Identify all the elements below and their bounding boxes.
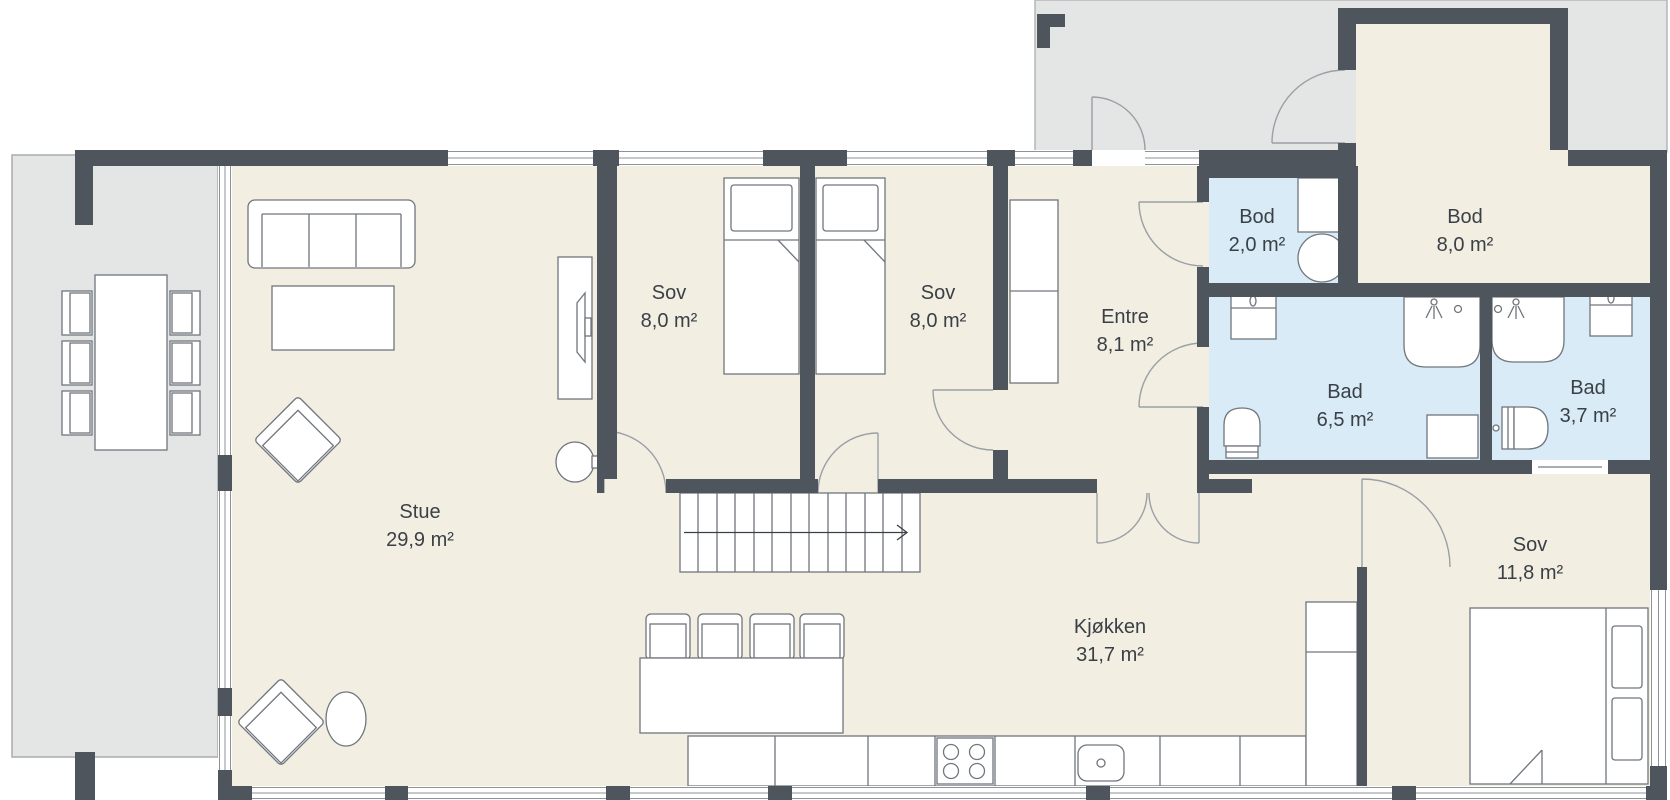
side-stool: [556, 442, 594, 482]
room-label-sov3: Sov: [1513, 534, 1547, 556]
room-area-kjokken: 31,7 m²: [1076, 644, 1144, 666]
bath-cabinet: [1427, 415, 1478, 458]
pillow: [1612, 626, 1642, 688]
room-area-bad37: 3,7 m²: [1560, 405, 1617, 427]
room-label-stue: Stue: [399, 501, 440, 523]
bar-stool: [646, 614, 690, 660]
coffee-table: [272, 286, 394, 350]
room-label-bod8: Bod: [1447, 206, 1483, 228]
room-label-bad65: Bad: [1327, 381, 1363, 403]
tall-cabinet: [1306, 602, 1357, 786]
pillow: [731, 185, 792, 231]
double-bed: [1470, 608, 1648, 784]
pillow: [1612, 698, 1642, 760]
room-area-bad65: 6,5 m²: [1317, 409, 1374, 431]
washing-machine-icon: [1590, 292, 1632, 336]
shower: [1492, 297, 1564, 362]
bar-stool: [750, 614, 794, 660]
sliding-door: [1532, 460, 1608, 474]
terrace: [12, 155, 218, 757]
room-bod8-tower-floor: [1356, 8, 1550, 166]
window: [232, 786, 1646, 800]
chair: [62, 291, 92, 335]
room-label-kjokken: Kjøkken: [1074, 616, 1146, 638]
kitchen-counter: [688, 736, 1306, 786]
chair: [170, 291, 200, 335]
chair: [170, 341, 200, 385]
shower: [1404, 297, 1480, 367]
chair: [170, 391, 200, 435]
floor-plan-page: Stue 29,9 m² Sov 8,0 m² Sov 8,0 m² Entre…: [0, 0, 1670, 800]
chair: [62, 391, 92, 435]
room-area-stue: 29,9 m²: [386, 529, 454, 551]
pillow: [823, 185, 878, 231]
single-bed: [724, 178, 799, 374]
room-label-bod2: Bod: [1239, 206, 1275, 228]
room-label-sov1: Sov: [652, 282, 686, 304]
kitchen-island: [640, 658, 843, 733]
room-area-bod8: 8,0 m²: [1437, 234, 1494, 256]
front-door-opening: [1092, 150, 1145, 166]
round-side-table: [326, 692, 366, 746]
staircase: [680, 493, 920, 572]
room-area-sov2: 8,0 m²: [910, 310, 967, 332]
room-area-sov1: 8,0 m²: [641, 310, 698, 332]
bar-stool: [698, 614, 742, 660]
dining-table: [95, 275, 167, 450]
toilet-icon: [1224, 408, 1260, 458]
hall-closet: [1010, 200, 1058, 383]
tv-icon: [577, 293, 585, 362]
room-label-entre: Entre: [1101, 306, 1149, 328]
single-bed: [816, 178, 885, 374]
sofa: [248, 200, 415, 268]
washing-machine-icon: [1231, 295, 1276, 339]
chair: [62, 341, 92, 385]
room-area-bod2: 2,0 m²: [1229, 234, 1286, 256]
room-label-sov2: Sov: [921, 282, 955, 304]
room-label-bad37: Bad: [1570, 377, 1606, 399]
bar-stool: [800, 614, 844, 660]
room-area-entre: 8,1 m²: [1097, 334, 1154, 356]
room-area-sov3: 11,8 m²: [1497, 562, 1564, 584]
window: [1650, 590, 1667, 766]
tv-bench: [558, 257, 592, 399]
floor-plan: Stue 29,9 m² Sov 8,0 m² Sov 8,0 m² Entre…: [0, 0, 1670, 800]
cooktop-icon: [937, 738, 993, 784]
sink-icon: [1078, 745, 1124, 781]
